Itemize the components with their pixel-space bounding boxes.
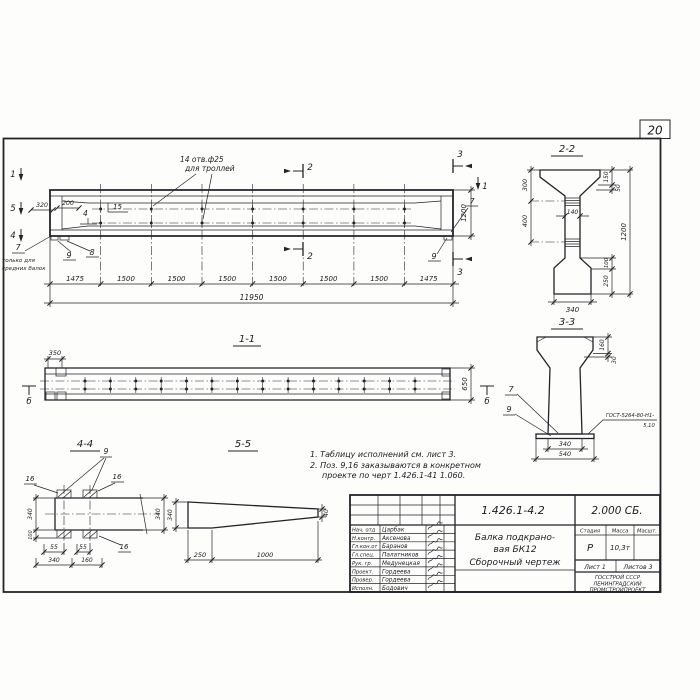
holes-callout-text: 14 отв.ф25 [180,155,224,164]
blueprint-canvas: 20 14 отв.ф25 для троллей [0,0,700,700]
section-title: 5-5 [235,439,251,450]
dim-label: 340 [559,440,571,448]
dim-label: 1500 [370,275,388,283]
org-line: ПРОМСТРОЙПРОЕКТ [590,586,647,593]
elevation-local-dims: 320 200 15 4 [28,200,128,224]
position-label: 9 [431,252,436,261]
section-title: 2-2 [559,144,575,155]
dim-label: 1500 [168,275,186,283]
dim-label: 1500 [218,275,236,283]
holes-callout-text: для троллей [184,164,235,173]
staff-role: Н.контр. [352,536,375,542]
doc-number: 1.426.1-4.2 [481,504,544,517]
dim-label: 1500 [117,275,135,283]
cut-mark-label: 1 [10,170,15,180]
dim-label: 55 [79,544,87,551]
mass-header: Масса [612,529,629,535]
staff-role: Гл.спец. [352,553,374,559]
section-2-2-view: 2-2 140 300 400 150 50 100 250 1200 340 [521,144,633,314]
dim-label: 400 [521,215,529,227]
doc-mark: 2.000 СБ. [591,505,642,517]
signature [428,564,443,572]
drawing-sheet: 20 14 отв.ф25 для троллей [0,0,700,700]
elevation-left-callouts: 7 только для средних балок 9 8 [2,236,99,272]
signature [428,555,443,563]
position-label: 8 [89,248,94,257]
dim-label: 1200 [460,204,468,222]
sheets-label: Листов 3 [622,564,652,571]
plan-holes [84,377,417,393]
sheet-number: 20 [647,124,663,138]
dim-label: 340 [48,557,60,564]
dim-label: 340 [27,508,34,520]
section-2-2-profile [540,170,600,294]
dim-label: 140 [567,209,579,216]
position-label: 16 [113,473,122,481]
weld-note: 5,10 [643,423,655,429]
staff-name: Гордеева [382,578,411,584]
title-line: Балка подкрано- [475,533,555,543]
cut-mark-label: б [484,397,489,407]
dim-label: 40 [323,509,330,517]
section-5-5-view: 5-5 340 40 250 1000 [167,439,330,563]
dim-label: 1200 [620,223,628,241]
stage-mass-scale: Стадия Масса Масшт. Р 10,3т [575,525,660,560]
dim-label: 100 [28,530,34,540]
section-title: 1-1 [239,334,255,345]
signature [428,547,443,555]
dim-label: 340 [155,508,162,520]
dim-label: 300 [521,179,529,191]
note-text: средних балок [2,266,46,272]
position-label: 9 [104,447,109,456]
staff-name: Баранов [382,544,408,550]
dim-label: 340 [566,306,580,314]
staff-role: Гл.кон.от [352,544,378,550]
note-text: только для [2,258,36,264]
position-label: 16 [120,543,129,551]
weld-note: ГОСТ-5264-80-Н1- [606,413,654,419]
staff-name: Царбак [382,527,405,533]
main-elevation-view: 14 отв.ф25 для троллей 320 200 15 4 7 то… [2,150,488,307]
drawing-notes: 1. Таблицу исполнений см. лист 3. 2. Поз… [310,450,481,480]
position-label: 9 [506,405,511,414]
note-line: 2. Поз. 9,16 заказываются в конкретном [310,461,481,470]
dim-label: 1475 [420,275,438,283]
dim-label-total: 11950 [240,293,264,302]
staff-role: Нач. отд [352,527,376,533]
org-line: ГОССТРОЙ СССР [595,574,641,581]
dim-label: 200 [62,200,74,207]
staff-rows: Нач. отд Царбак Н.контр. Аксенова Гл.кон… [352,522,443,592]
cut-mark-label: 3 [457,150,463,160]
stage-header: Стадия [580,529,600,535]
dim-label: 350 [49,349,61,357]
staff-name: Бодович [382,586,408,592]
note-line: 1. Таблицу исполнений см. лист 3. [310,450,456,459]
mass-value: 10,3т [610,544,631,552]
signature [428,580,443,588]
dim-label: 250 [194,551,206,559]
cut-mark-label: 3 [457,268,463,278]
dim-label: 650 [461,377,469,391]
section-3-3-profile [537,337,593,434]
scale-header: Масшт. [637,529,657,535]
position-label: 7 [469,197,475,206]
staff-name: Аксенова [381,536,411,542]
section-cut-marks: 1 5 4 1 2 2 3 3 [10,150,487,278]
dim-label: 50 [616,184,622,192]
staff-role: Исполн. [352,586,374,592]
cut-mark-label: 4 [10,231,15,241]
staff-name: Палатников [382,553,419,559]
holes-callout: 14 отв.ф25 для троллей [153,155,235,219]
section-title: 3-3 [559,317,575,328]
signature [428,538,443,546]
dim-label: 1000 [257,551,274,559]
section-1-1-view: 1-1 350 650 б б [22,334,494,407]
title-line: Сборочный чертеж [469,558,561,568]
organization-name: ГОССТРОЙ СССР ЛЕНИНГРАДСКИЙ ПРОМСТРОЙПРО… [590,574,647,593]
section-3-3-view: 3-3 160 30 7 9 ГОСТ-5264-80-Н1- 5,10 340… [503,317,657,462]
cut-mark-label: 1 [482,182,487,192]
signature [428,572,443,580]
section-title: 4-4 [77,439,93,450]
dim-label: 340 [167,509,174,521]
dim-label: 100 [604,257,610,268]
signature [428,530,443,538]
staff-role: Провер. [352,578,374,584]
dim-label: 150 [604,171,610,182]
sheet-counters: Лист 1 Листов 3 [575,560,660,572]
cut-mark-label: 2 [307,252,313,262]
position-label: 7 [508,385,514,394]
cut-mark-label: б [26,397,31,407]
title-line: вая БК12 [493,545,536,555]
staff-role: Рук. гр. [352,561,372,567]
dim-label: 320 [36,202,48,209]
stage-value: Р [587,543,594,554]
position-label: 4 [83,209,88,218]
elevation-centerlines [92,184,413,286]
dim-label: 1500 [269,275,287,283]
section-4-4-view: 4-4 9 16 16 16 340 100 55 55 340 160 [24,439,168,568]
dim-label: 1475 [66,275,84,283]
staff-name: Медунецкая [382,561,420,567]
elevation-dimensions: 1475 1500 1500 1500 1500 1500 1500 1475 … [44,186,475,307]
position-label: 9 [66,251,71,260]
beam-outline [50,190,453,240]
dim-label: 30 [612,356,618,364]
note-line: проекте по черт 1.426.1-41 1.060. [322,471,465,480]
position-label: 7 [15,243,21,252]
dim-label: 250 [603,275,610,287]
position-label: 15 [113,203,122,211]
title-block: Нач. отд Царбак Н.контр. Аксенова Гл.кон… [350,495,660,593]
dim-label: 540 [559,450,571,458]
dim-label: 160 [599,339,606,351]
dim-label: 1500 [320,275,338,283]
drawing-title: Балка подкрано- вая БК12 Сборочный черте… [455,533,575,570]
cut-mark-label: 2 [307,163,313,173]
tapered-plate [188,502,318,528]
cut-mark-label: 5 [10,204,15,214]
bearing-plate [536,434,594,439]
sheet-label: Лист 1 [583,564,606,571]
plan-outline [45,368,450,400]
dim-label: 160 [81,557,93,564]
dim-label: 55 [50,544,58,551]
staff-role: Проект. [352,569,373,575]
frame-border [4,139,661,593]
position-label: 16 [26,475,35,483]
staff-name: Гордеева [382,569,411,575]
